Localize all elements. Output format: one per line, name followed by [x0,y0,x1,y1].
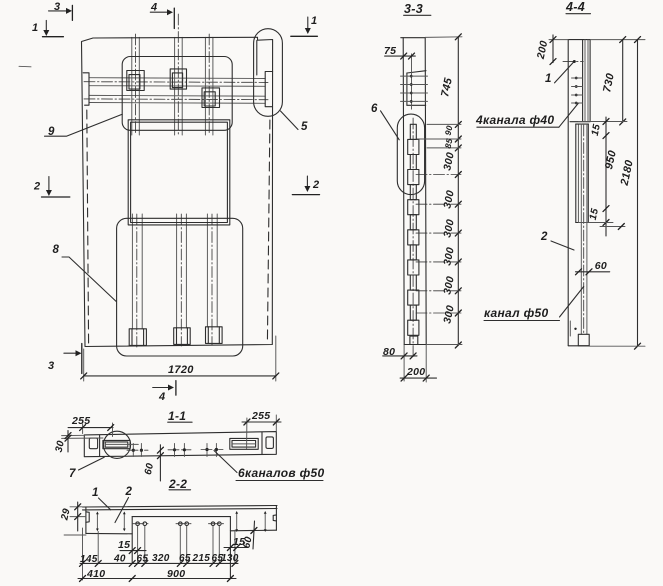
svg-text:4: 4 [158,391,165,403]
svg-text:1: 1 [545,73,552,85]
svg-text:900: 900 [167,568,185,580]
svg-text:канал ф50: канал ф50 [484,306,548,320]
svg-text:1-1: 1-1 [168,409,186,423]
svg-text:7: 7 [69,468,76,480]
svg-text:255: 255 [251,410,270,422]
svg-text:65: 65 [137,554,149,565]
svg-text:15: 15 [118,539,130,551]
svg-text:90: 90 [443,124,455,136]
svg-text:1: 1 [92,487,99,499]
svg-text:255: 255 [71,415,90,427]
svg-text:1: 1 [32,22,38,34]
svg-text:60: 60 [595,260,607,272]
svg-text:4-4: 4-4 [565,0,585,14]
svg-text:2-2: 2-2 [168,477,187,491]
svg-text:2: 2 [312,179,319,191]
svg-text:200: 200 [406,366,425,378]
svg-text:6: 6 [371,103,378,115]
svg-text:40: 40 [113,554,126,565]
svg-text:75: 75 [384,45,396,57]
svg-text:410: 410 [86,568,105,580]
svg-text:2: 2 [125,486,133,498]
svg-text:6каналов ф50: 6каналов ф50 [238,466,324,480]
svg-text:130: 130 [221,553,239,564]
svg-text:65: 65 [179,553,191,564]
svg-text:3-3: 3-3 [404,2,423,16]
svg-text:2: 2 [540,231,548,243]
svg-text:3: 3 [48,360,54,372]
svg-text:2: 2 [33,181,40,193]
svg-text:85: 85 [443,137,455,149]
svg-text:1720: 1720 [168,364,194,376]
svg-text:145: 145 [80,554,98,565]
svg-text:320: 320 [152,553,170,564]
svg-text:4канала ф40: 4канала ф40 [475,113,554,127]
svg-text:215: 215 [192,553,211,564]
svg-text:1: 1 [311,15,317,27]
svg-text:8: 8 [53,244,60,256]
svg-text:5: 5 [301,121,308,133]
